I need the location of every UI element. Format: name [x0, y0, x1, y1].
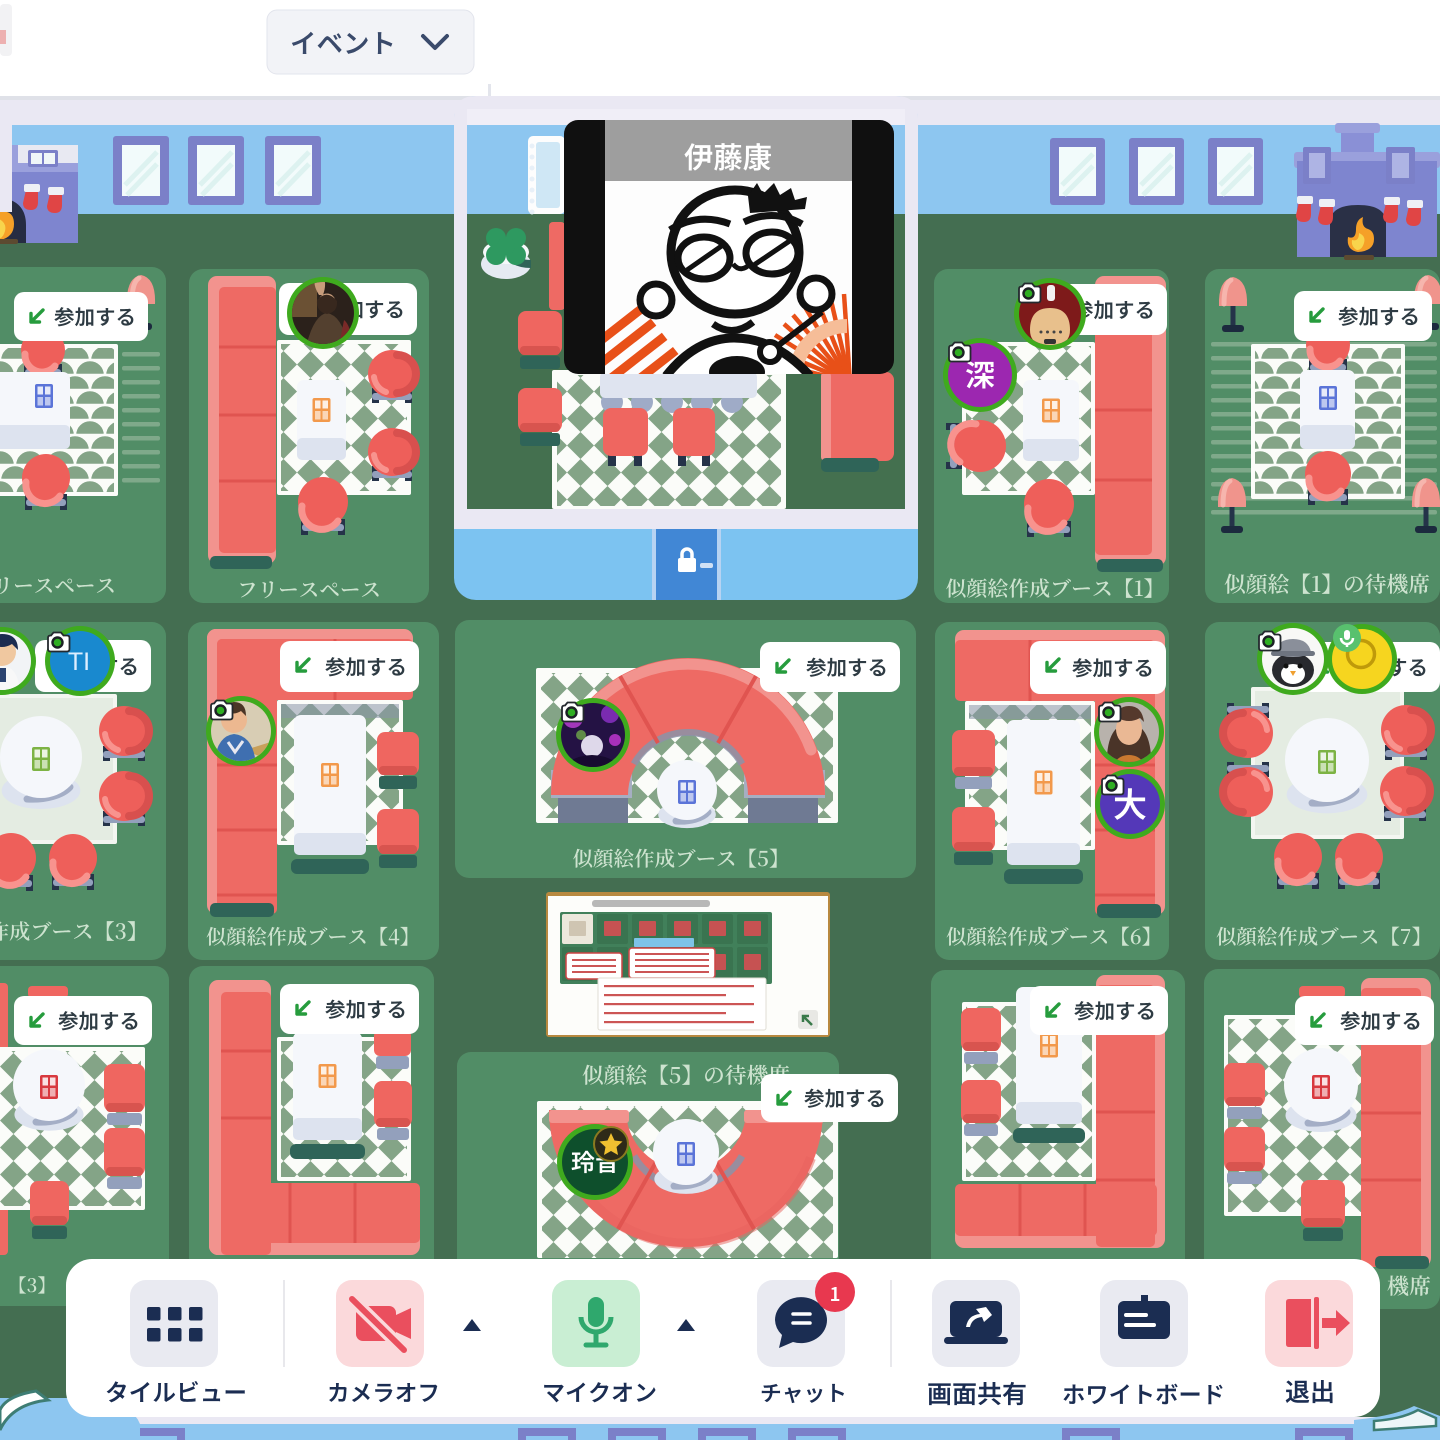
svg-text:TI: TI	[68, 648, 90, 676]
